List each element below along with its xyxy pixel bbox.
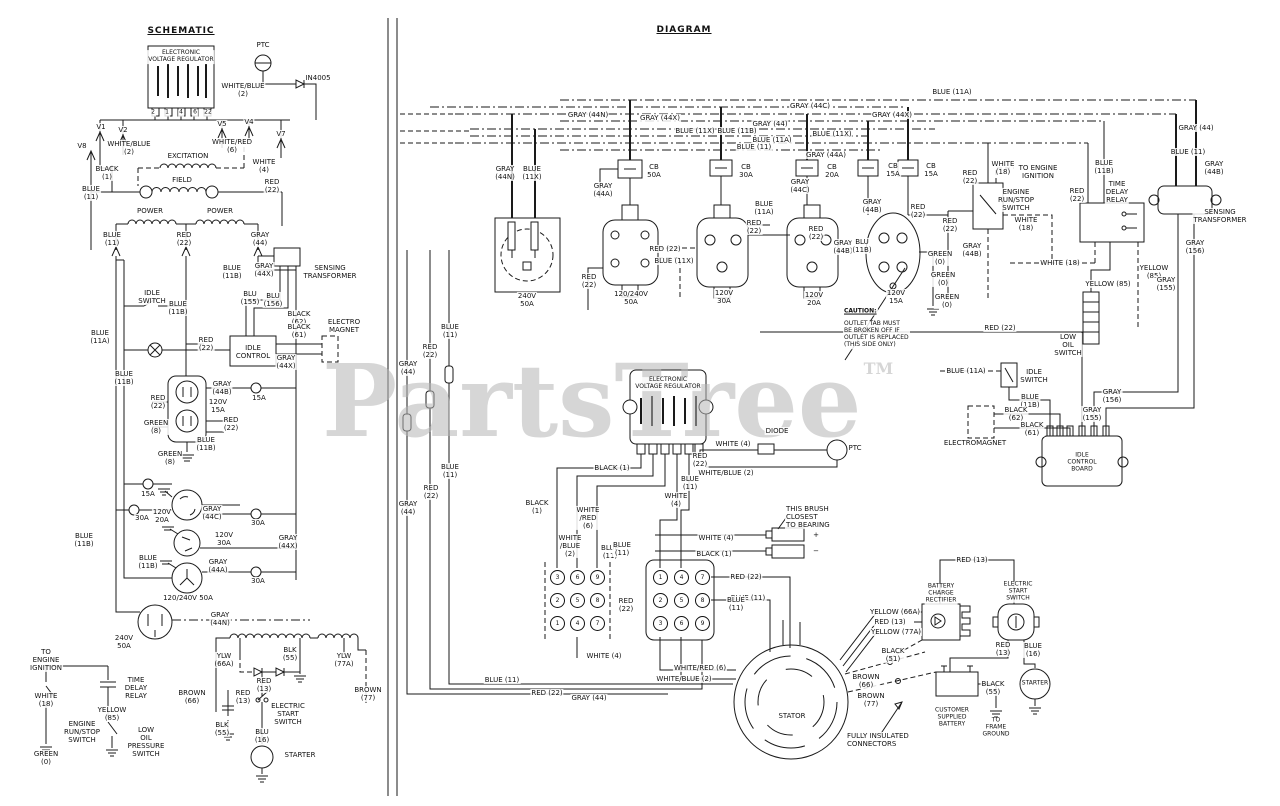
wire-label: BLUE (11B) xyxy=(73,532,94,548)
wire-label: BLACK (1) xyxy=(695,550,732,558)
connector-pin: 6 xyxy=(570,570,585,585)
wire-label: WHITE (18) xyxy=(1039,259,1081,267)
connector-pin: 1 xyxy=(550,616,565,631)
wire-label: YELLOW (85) xyxy=(1084,280,1131,288)
wire-label: GRAY (44) xyxy=(1177,124,1214,132)
wire-label: BLUE (11) xyxy=(484,676,521,684)
wire-label: V5 xyxy=(216,120,227,128)
wire-label: STARTER xyxy=(284,751,317,759)
connector-pin: 2 xyxy=(550,593,565,608)
wire-label: GRAY (44) xyxy=(250,231,271,247)
connector-pin: 4 xyxy=(570,616,585,631)
wire-label: BLUE (11) xyxy=(81,185,101,201)
wire-label: BLUE (11) xyxy=(612,541,632,557)
wire-label: STATOR xyxy=(777,712,806,720)
wire-label: RED (22) xyxy=(942,217,959,233)
wire-label: GREEN (0) xyxy=(930,271,956,287)
wire-label: BROWN (66) xyxy=(851,673,880,689)
wire-label: 240V 50A xyxy=(114,634,134,650)
wire-label: V1 xyxy=(95,123,106,131)
wire-label: GREEN (0) xyxy=(927,250,953,266)
wire-label: RED (13) xyxy=(955,556,988,564)
wire-label: 120V 20A xyxy=(804,291,824,307)
wire-label: 15A xyxy=(251,394,267,402)
wire-label: GRAY (44X) xyxy=(639,114,681,122)
wire-label: PTC xyxy=(848,444,863,452)
wire-label: RED (22) xyxy=(983,324,1016,332)
wire-label: V4 xyxy=(243,118,254,126)
wire-label: IDLE CONTROL BOARD xyxy=(1066,453,1097,474)
connector-pin: 6 xyxy=(674,616,689,631)
wire-label: GRAY (44B) xyxy=(832,239,853,255)
wire-label: TO ENGINE IGNITION xyxy=(29,648,63,672)
wire-label: ELECTRIC START SWITCH xyxy=(270,702,306,726)
wire-label: BLUE (11) xyxy=(440,323,460,339)
wire-label: BROWN (66) xyxy=(177,689,206,705)
wire-label: RED (13) xyxy=(235,689,252,705)
wire-label: RED (22) xyxy=(423,484,440,500)
wire-label: BLUE (11B) xyxy=(1093,159,1114,175)
wire-label: WHITE/BLUE (2) xyxy=(697,469,754,477)
wire-label: GRAY (44B) xyxy=(1203,160,1224,176)
wire-label: IDLE SWITCH xyxy=(1019,368,1048,384)
wiring-diagram-page: { "sections": { "schematic_title": "SCHE… xyxy=(0,0,1280,806)
wire-label: IDLE SWITCH xyxy=(137,289,166,305)
wire-label: GRAY (44A) xyxy=(805,151,847,159)
wire-label: 2 xyxy=(150,110,156,117)
wire-label: WHITE/RED (6) xyxy=(211,138,253,154)
wire-label: WHITE /RED (6) xyxy=(576,506,601,530)
wire-label: RED (22) xyxy=(746,219,763,235)
wire-label: WHITE (4) xyxy=(585,652,622,660)
wire-label: SENSING TRANSFORMER xyxy=(302,264,357,280)
wire-label: BLU (11B) xyxy=(851,238,872,254)
wire-label: DIODE xyxy=(765,427,790,435)
wire-label: BLUE (11A) xyxy=(945,367,986,375)
wire-label: WHITE (4) xyxy=(664,492,689,508)
label-layer: ELECTRONIC VOLTAGE REGULATOR214622PTCIN4… xyxy=(0,0,1280,806)
wire-label: LOW OIL SWITCH xyxy=(1053,333,1082,357)
wire-label: BLUE (11B) xyxy=(113,370,134,386)
wire-label: GRAY (44X) xyxy=(277,534,298,550)
wire-label: OUTLET TAB MUST BE BROKEN OFF IF OUTLET … xyxy=(843,321,910,349)
wire-label: BROWN (77) xyxy=(353,686,382,702)
wire-label: 30A xyxy=(134,514,150,522)
wire-label: BLUE (11X) xyxy=(653,257,694,265)
wire-label: WHITE /BLUE (2) xyxy=(558,534,583,558)
wire-label: − xyxy=(812,547,820,555)
wire-label: GRAY (44N) xyxy=(494,165,516,181)
wire-label: BLUE (11) xyxy=(1170,148,1207,156)
wire-label: RED (22) xyxy=(176,231,193,247)
wire-label: BLUE (11A) xyxy=(753,200,774,216)
wire-label: V2 xyxy=(117,126,128,134)
wire-label: RED (22) xyxy=(422,343,439,359)
wire-label: BLUE (11) xyxy=(736,143,773,151)
wire-label: CB 20A xyxy=(824,163,840,179)
wire-label: 120V 20A xyxy=(152,508,172,524)
wire-label: GREEN (0) xyxy=(934,293,960,309)
wire-label: RED (22) xyxy=(1069,187,1086,203)
wire-label: WHITE/BLUE (2) xyxy=(106,140,151,156)
wire-label: PTC xyxy=(256,41,271,49)
wire-label: RED (22) xyxy=(648,245,681,253)
wire-label: BLUE (11X) xyxy=(811,130,852,138)
wire-label: RED (22) xyxy=(264,178,281,194)
wire-label: BLU (16) xyxy=(254,728,270,744)
wire-label: THIS BRUSH CLOSEST TO BEARING xyxy=(785,505,831,529)
wire-label: GRAY (44C) xyxy=(789,178,810,194)
wire-label: BLUE (11X) xyxy=(521,165,542,181)
wire-label: YLW (77A) xyxy=(333,652,354,668)
wire-label: BLUE (11X) xyxy=(674,127,715,135)
wire-label: BLACK (55) xyxy=(980,680,1005,696)
wire-label: BLU (156) xyxy=(263,292,284,308)
wire-label: 4 xyxy=(178,110,184,117)
wire-label: BLK (55) xyxy=(214,721,230,737)
wire-label: TIME DELAY RELAY xyxy=(1105,180,1129,204)
wire-label: FIELD xyxy=(171,176,193,184)
wire-label: V7 xyxy=(275,130,286,138)
connector-pin: 8 xyxy=(695,593,710,608)
wire-label: CB 50A xyxy=(646,163,662,179)
wire-label: BLUE (11A) xyxy=(89,329,110,345)
wire-label: YELLOW (66A) xyxy=(869,608,921,616)
wire-label: BLUE (11B) xyxy=(221,264,242,280)
wire-label: LOW OIL PRESSURE SWITCH xyxy=(127,726,166,758)
connector-pin: 4 xyxy=(674,570,689,585)
wire-label: GRAY (156) xyxy=(1102,388,1123,404)
wire-label: BLACK (62) xyxy=(1003,406,1028,422)
wire-label: ELECTROMAGNET xyxy=(943,439,1007,447)
wire-label: BLUE (11B) xyxy=(195,436,216,452)
wire-label: 1 xyxy=(164,110,170,117)
wire-label: TIME DELAY RELAY xyxy=(124,676,148,700)
connector-pin: 3 xyxy=(550,570,565,585)
wire-label: CAUTION: xyxy=(843,309,878,316)
wire-label: ENGINE RUN/STOP SWITCH xyxy=(63,720,101,744)
connector-pin: 9 xyxy=(590,570,605,585)
wire-label: RED (22) xyxy=(808,225,825,241)
wire-label: WHITE/RED (6) xyxy=(673,664,727,672)
wire-label: ELECTRONIC VOLTAGE REGULATOR xyxy=(634,377,701,391)
wire-label: CB 15A xyxy=(923,162,939,178)
wire-label: GRAY (44) xyxy=(398,500,419,516)
wire-label: GREEN (0) xyxy=(33,750,59,766)
wire-label: GRAY (44C) xyxy=(789,102,831,110)
wire-label: GRAY (44A) xyxy=(207,558,228,574)
wire-label: 240V 50A xyxy=(517,292,537,308)
wire-label: GREEN (8) xyxy=(143,419,169,435)
wire-label: POWER xyxy=(206,207,234,215)
wire-label: BLACK (61) xyxy=(286,323,311,339)
wire-label: CB 30A xyxy=(738,163,754,179)
wire-label: WHITE (18) xyxy=(991,160,1016,176)
wire-label: BLACK (1) xyxy=(94,165,119,181)
wire-label: GRAY (156) xyxy=(1185,239,1206,255)
wire-label: GRAY (44B) xyxy=(961,242,982,258)
connector-pin: 9 xyxy=(695,616,710,631)
wire-label: WHITE (4) xyxy=(714,440,751,448)
wire-label: GRAY (44C) xyxy=(201,505,222,521)
wire-label: BLUE (11B) xyxy=(137,554,158,570)
wire-label: BLACK (1) xyxy=(593,464,630,472)
wire-label: TO ENGINE IGNITION xyxy=(1018,164,1059,180)
wire-label: ELECTRIC START SWITCH xyxy=(1003,582,1034,603)
wire-label: BATTERY CHARGE RECTIFIER xyxy=(925,584,958,605)
wire-label: GRAY (44B) xyxy=(861,198,882,214)
wire-label: CB 15A xyxy=(885,162,901,178)
wire-label: BLUE (11A) xyxy=(931,88,972,96)
wire-label: GRAY (44X) xyxy=(253,262,274,278)
connector-pin: 1 xyxy=(653,570,668,585)
wire-label: V8 xyxy=(76,142,87,150)
wire-label: GRAY (155) xyxy=(1082,406,1103,422)
wire-label: RED (22) xyxy=(618,597,635,613)
wire-label: IN4005 xyxy=(304,74,331,82)
wire-label: BLUE (16) xyxy=(1023,642,1043,658)
wire-label: WHITE (4) xyxy=(697,534,734,542)
wire-label: ENGINE RUN/STOP SWITCH xyxy=(997,188,1035,212)
wire-label: BLACK (61) xyxy=(1019,421,1044,437)
wire-label: RED (22) xyxy=(581,273,598,289)
connector-pin: 5 xyxy=(570,593,585,608)
wire-label: BLUE (11B) xyxy=(167,300,188,316)
connector-pin: 2 xyxy=(653,593,668,608)
connector-pin: 7 xyxy=(695,570,710,585)
wire-label: BLUE (11) xyxy=(726,596,746,612)
wire-label: TO FRAME GROUND xyxy=(981,718,1010,739)
wire-label: GRAY (44X) xyxy=(871,111,913,119)
wire-label: 6 xyxy=(192,110,198,117)
connector-pin: 8 xyxy=(590,593,605,608)
wire-label: BLU (155) xyxy=(240,290,261,306)
wire-label: RED (22) xyxy=(962,169,979,185)
wire-label: RED (22) xyxy=(910,203,927,219)
wire-label: 120V 15A xyxy=(886,289,906,305)
wire-label: RED (13) xyxy=(995,641,1012,657)
wire-label: GRAY (44A) xyxy=(592,182,613,198)
wire-label: RED (22) xyxy=(223,416,240,432)
wire-label: YELLOW (77A) xyxy=(870,628,922,636)
wire-label: WHITE (18) xyxy=(34,692,59,708)
wire-label: GRAY (44N) xyxy=(567,111,609,119)
wire-label: BLACK (51) xyxy=(880,647,905,663)
wire-label: BLUE (11) xyxy=(440,463,460,479)
wire-label: GREEN (8) xyxy=(157,450,183,466)
wire-label: 22 xyxy=(203,110,213,117)
connector-pin: 5 xyxy=(674,593,689,608)
wire-label: BLUE (11B) xyxy=(716,127,757,135)
wire-label: RED (22) xyxy=(198,336,215,352)
wire-label: ELECTRO MAGNET xyxy=(327,318,361,334)
wire-label: ELECTRONIC VOLTAGE REGULATOR xyxy=(147,50,214,64)
wire-label: BLUE (11) xyxy=(680,475,700,491)
wire-label: RED (22) xyxy=(692,452,709,468)
wire-label: 120V 30A xyxy=(214,531,234,547)
wire-label: YLW (66A) xyxy=(213,652,234,668)
wire-label: 120V 15A xyxy=(208,398,228,414)
wire-label: POWER xyxy=(136,207,164,215)
wire-label: 120V 30A xyxy=(714,289,734,305)
wire-label: GRAY (44X) xyxy=(275,354,296,370)
wire-label: RED (22) xyxy=(150,394,167,410)
wire-label: 30A xyxy=(250,577,266,585)
wire-label: RED (13) xyxy=(256,677,273,693)
wire-label: RED (22) xyxy=(530,689,563,697)
wire-label: BLK (55) xyxy=(282,646,298,662)
wire-label: 15A xyxy=(140,490,156,498)
wire-label: RED (13) xyxy=(873,618,906,626)
wire-label: WHITE (18) xyxy=(1014,216,1039,232)
wire-label: RED (22) xyxy=(729,573,762,581)
wire-label: BROWN (77) xyxy=(856,692,885,708)
wire-label: + xyxy=(812,531,820,539)
wire-label: WHITE/BLUE (2) xyxy=(220,82,265,98)
wire-label: 120/240V 50A xyxy=(162,594,214,602)
connector-pin: 3 xyxy=(653,616,668,631)
wire-label: SENSING TRANSFORMER xyxy=(1192,208,1247,224)
wire-label: YELLOW (85) xyxy=(97,706,128,722)
wire-label: GRAY (155) xyxy=(1156,276,1177,292)
connector-pin: 7 xyxy=(590,616,605,631)
wire-label: WHITE/BLUE (2) xyxy=(655,675,712,683)
wire-label: BLACK (1) xyxy=(524,499,549,515)
wire-label: WHITE (4) xyxy=(252,158,277,174)
wire-label: IDLE CONTROL xyxy=(235,344,271,360)
wire-label: GRAY (44) xyxy=(398,360,419,376)
wire-label: GRAY (44B) xyxy=(211,380,232,396)
wire-label: GRAY (44N) xyxy=(209,611,231,627)
wire-label: STARTER xyxy=(1021,681,1049,688)
wire-label: CUSTOMER SUPPLIED BATTERY xyxy=(934,708,970,729)
wire-label: EXCITATION xyxy=(167,152,210,160)
wire-label: FULLY INSULATED CONNECTORS xyxy=(846,732,910,748)
wire-label: GRAY (44) xyxy=(570,694,607,702)
wire-label: 120/240V 50A xyxy=(613,290,649,306)
wire-label: 30A xyxy=(250,519,266,527)
wire-label: BLUE (11) xyxy=(102,231,122,247)
